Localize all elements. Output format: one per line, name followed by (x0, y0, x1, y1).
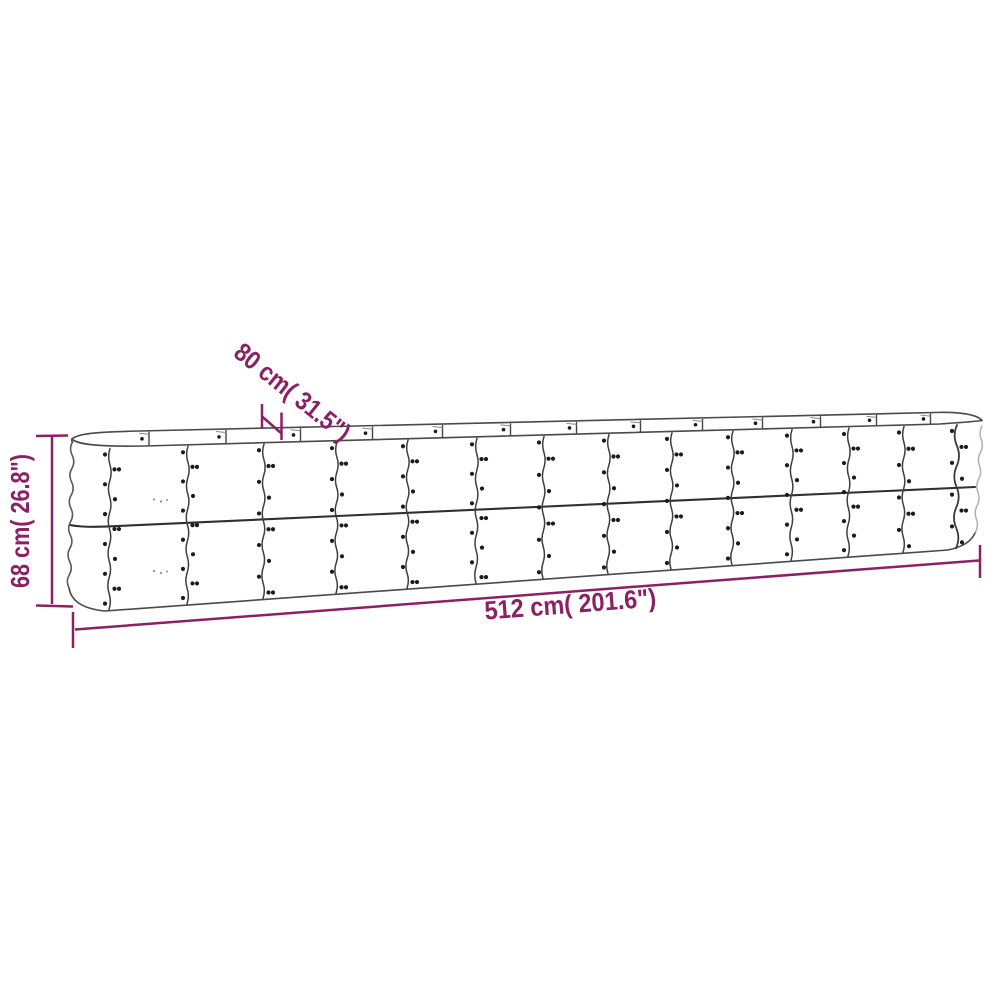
height-bottom-tick (36, 606, 73, 607)
planter-outline (69, 412, 982, 611)
width-dimension-line (262, 416, 282, 434)
width-dimension-label: 80 cm( 31.5") (228, 337, 356, 448)
length-dimension-label: 512 cm( 201.6") (483, 582, 657, 625)
dimension-diagram: 68 cm( 26.8") 80 cm( 31.5") 512 cm( 201.… (0, 0, 1000, 1000)
length-dimension: 512 cm( 201.6") (73, 545, 980, 648)
mid-seam (70, 487, 975, 527)
height-top-tick (36, 436, 68, 437)
height-dimension-label: 68 cm( 26.8") (5, 454, 35, 588)
height-dimension: 68 cm( 26.8") (5, 436, 73, 607)
planter-dimension-drawing: 68 cm( 26.8") 80 cm( 31.5") 512 cm( 201.… (0, 0, 1000, 1000)
width-dimension: 80 cm( 31.5") (228, 337, 356, 448)
